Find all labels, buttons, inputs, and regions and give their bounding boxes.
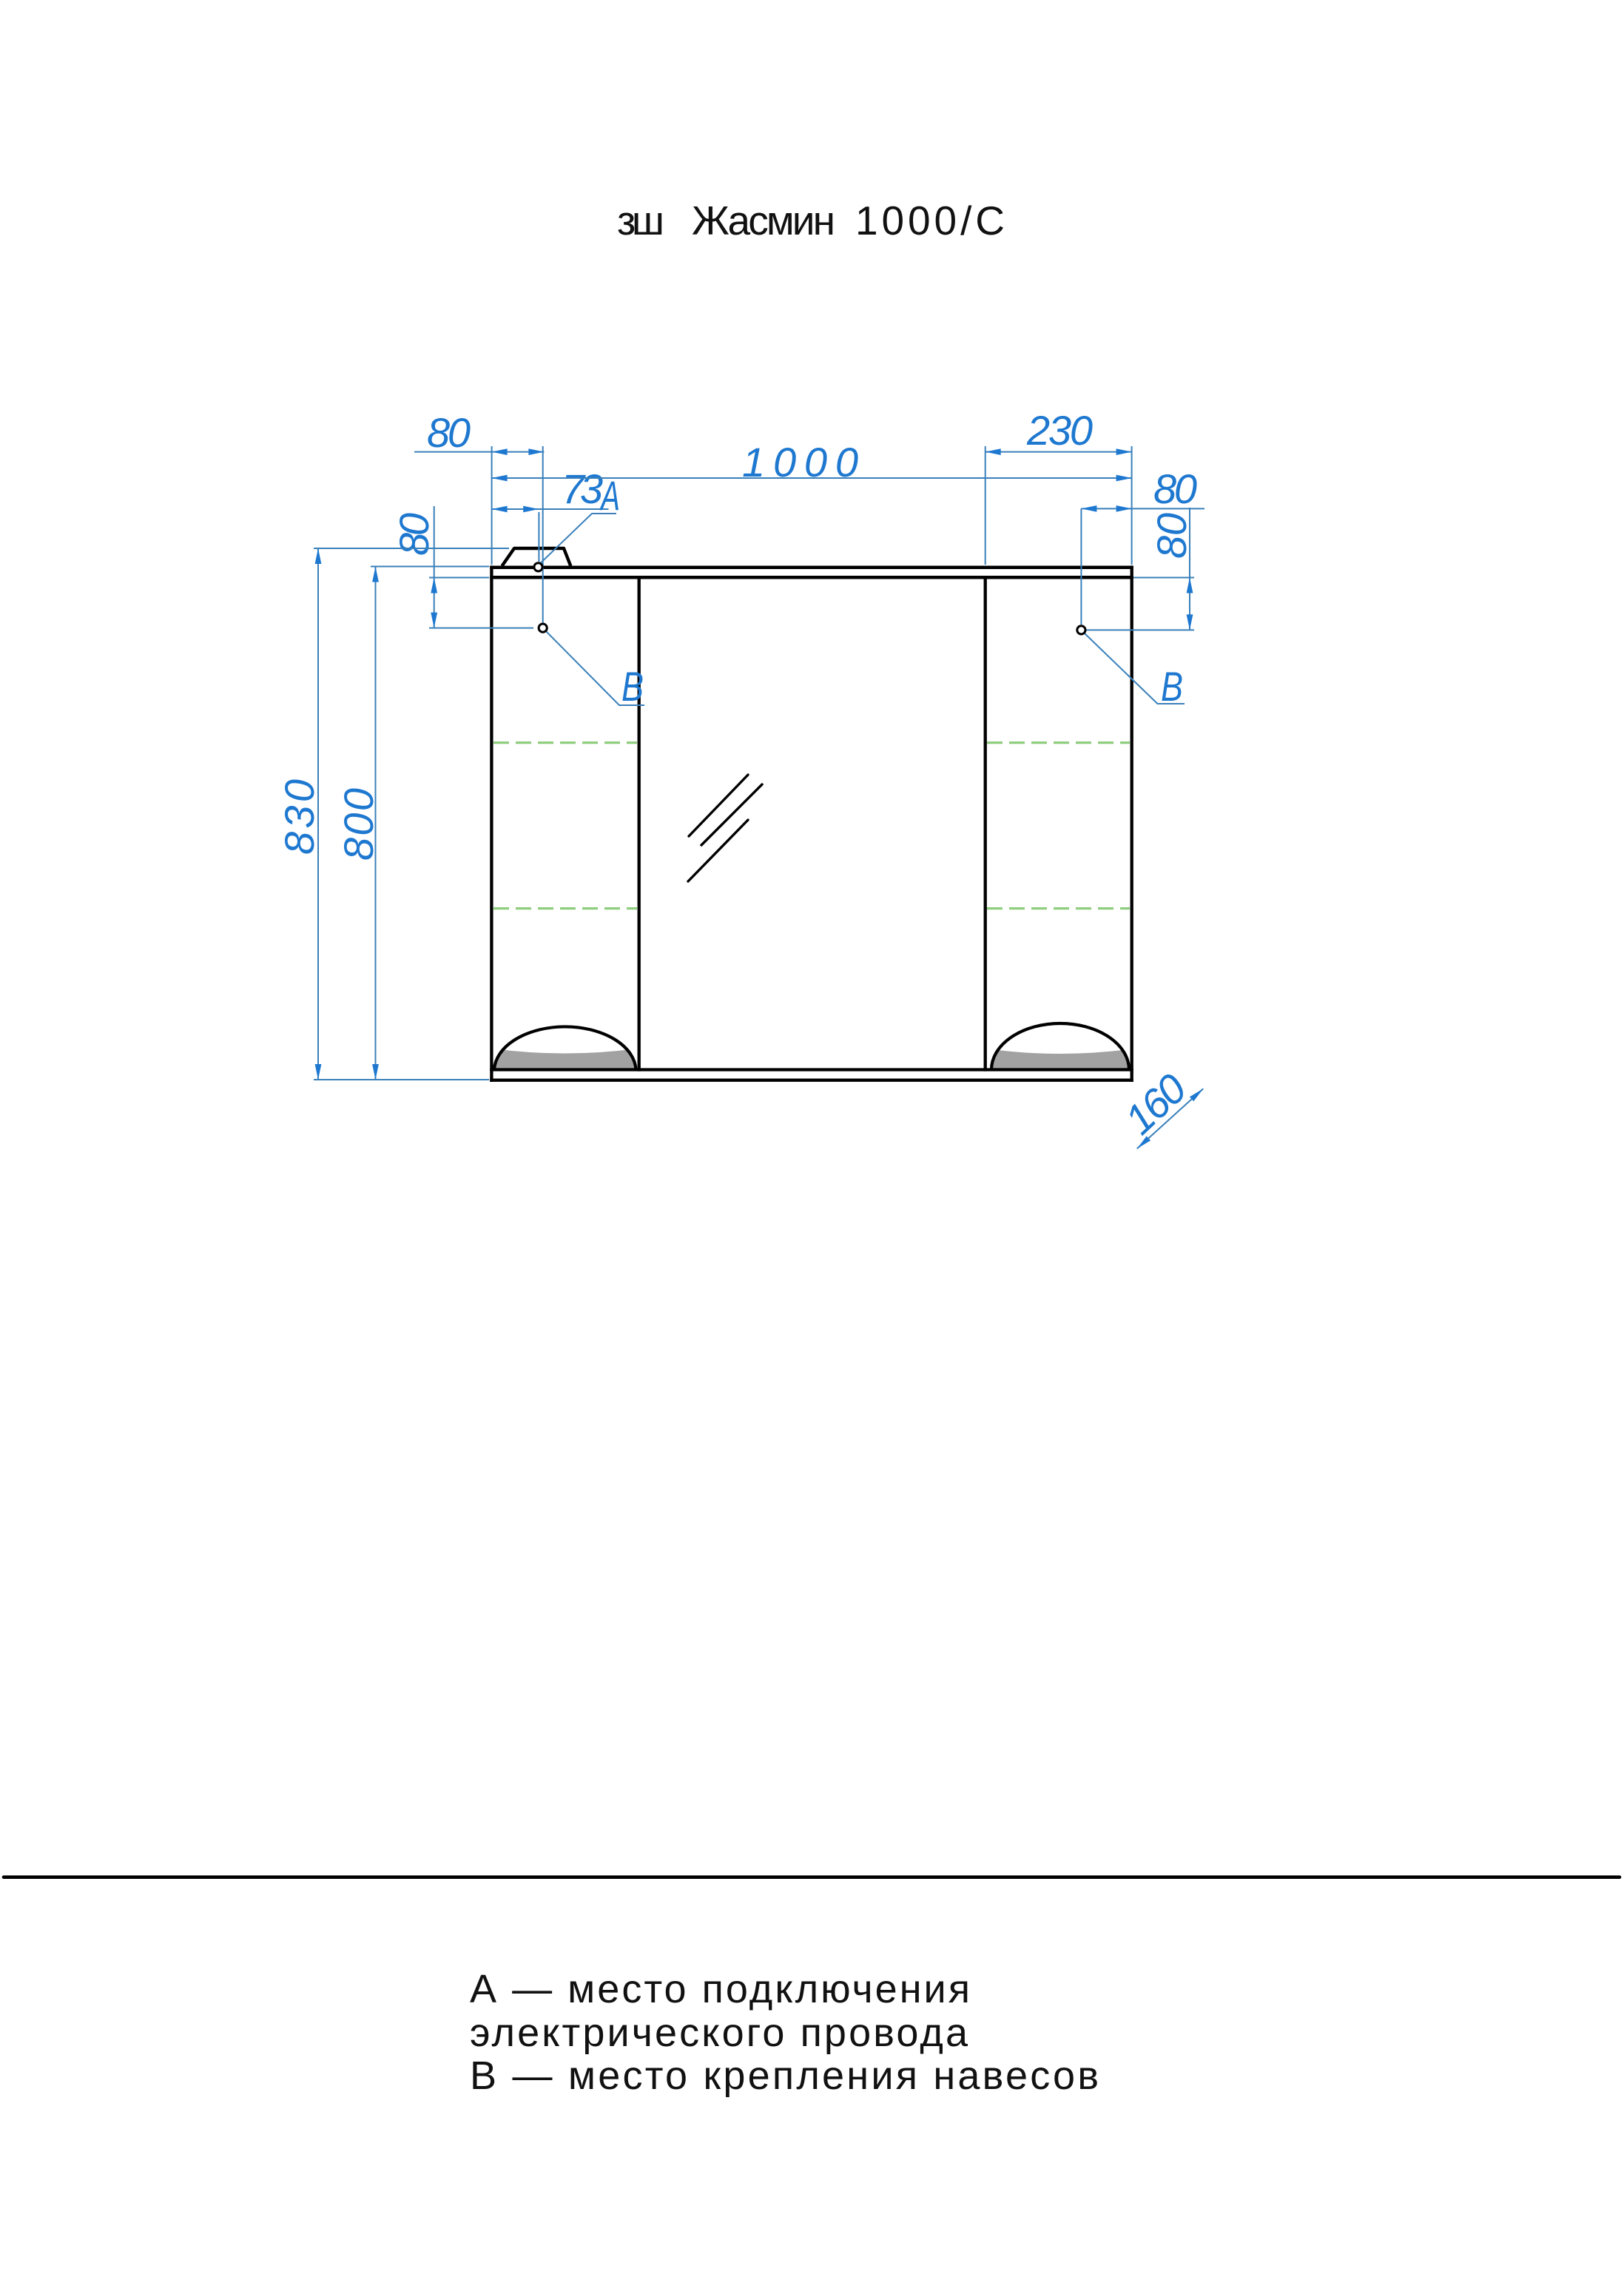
- svg-text:B: B: [1161, 663, 1183, 710]
- svg-text:Жасмин: Жасмин: [692, 198, 835, 243]
- svg-text:230: 230: [1026, 407, 1093, 454]
- svg-text:80: 80: [391, 513, 437, 556]
- svg-text:80: 80: [1153, 465, 1197, 512]
- svg-text:B: B: [621, 663, 644, 710]
- svg-text:А — место подключения: А — место подключения: [470, 1967, 970, 2011]
- svg-text:80: 80: [1148, 513, 1195, 559]
- svg-text:A: A: [599, 472, 620, 519]
- svg-text:73: 73: [562, 465, 603, 512]
- svg-text:1000/С: 1000/С: [855, 198, 1005, 243]
- svg-text:зш: зш: [617, 198, 664, 243]
- svg-text:80: 80: [427, 409, 471, 456]
- svg-text:электрического провода: электрического провода: [470, 2011, 968, 2055]
- svg-text:830: 830: [276, 779, 323, 855]
